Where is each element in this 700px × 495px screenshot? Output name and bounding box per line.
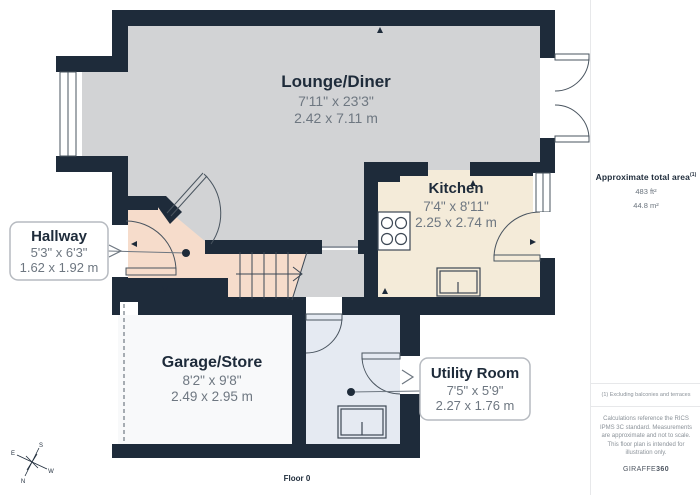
kitchen-door-opening	[540, 212, 555, 258]
french-door-opening	[540, 58, 555, 138]
total-area-block: Approximate total area(1) 483 ft² 44.8 m…	[591, 172, 700, 210]
disclaimer-text: Calculations reference the RICS IPMS 3C …	[591, 407, 700, 462]
giraffe360-logo: GIRAFFE360	[591, 466, 700, 473]
total-area-footnote-marker: (1)	[690, 172, 696, 178]
callout-anchor-dot	[347, 388, 355, 396]
floor-plan: Hallway 5'3" x 6'3" 1.62 x 1.92 m Utilit…	[0, 0, 590, 495]
lounge-dims-metric: 2.42 x 7.11 m	[294, 110, 378, 126]
compass-n: N	[21, 479, 25, 485]
footnote-text: (1) Excluding balconies and terraces	[591, 383, 700, 407]
total-area-label: Approximate total area	[596, 172, 690, 182]
hallway-dims-imperial: 5'3" x 6'3"	[31, 245, 88, 260]
garage-dims-metric: 2.49 x 2.95 m	[171, 389, 253, 404]
compass-s: S	[39, 443, 43, 449]
utility-top-door-opening	[306, 297, 342, 315]
utility-dims-imperial: 7'5" x 5'9"	[447, 383, 504, 398]
utility-label: Utility Room	[431, 365, 519, 382]
hob-icon	[378, 212, 410, 250]
brand-bold: 360	[656, 466, 669, 473]
french-doors-icon	[555, 54, 589, 142]
brand-light: GIRAFFE	[623, 466, 656, 473]
total-area-imperial: 483 ft²	[591, 187, 700, 196]
kitchen-dims-metric: 2.25 x 2.74 m	[415, 215, 497, 230]
total-area-title: Approximate total area(1)	[591, 172, 700, 182]
compass-w: W	[48, 469, 54, 475]
legal-block: (1) Excluding balconies and terraces Cal…	[591, 383, 700, 473]
garage-access-opening	[120, 302, 138, 315]
info-sidebar: Approximate total area(1) 483 ft² 44.8 m…	[590, 0, 700, 495]
garage-dims-imperial: 8'2" x 9'8"	[182, 373, 241, 388]
lounge-label: Lounge/Diner	[281, 72, 391, 91]
garage-label: Garage/Store	[162, 354, 263, 371]
lounge-dims-imperial: 7'11" x 23'3"	[298, 93, 374, 109]
hallway-dims-metric: 1.62 x 1.92 m	[20, 260, 99, 275]
hallway-label: Hallway	[31, 228, 88, 245]
kitchen-dims-imperial: 7'4" x 8'11"	[423, 199, 489, 214]
kitchen-label: Kitchen	[428, 180, 483, 197]
total-area-metric: 44.8 m²	[591, 201, 700, 210]
compass-e: E	[11, 451, 15, 457]
lounge-bay	[78, 70, 132, 164]
compass-icon: S E W N	[11, 443, 54, 485]
callout-anchor-dot	[182, 249, 190, 257]
utility-dims-metric: 2.27 x 1.76 m	[436, 398, 515, 413]
floor-label: Floor 0	[284, 474, 311, 483]
utility-room	[300, 312, 400, 444]
